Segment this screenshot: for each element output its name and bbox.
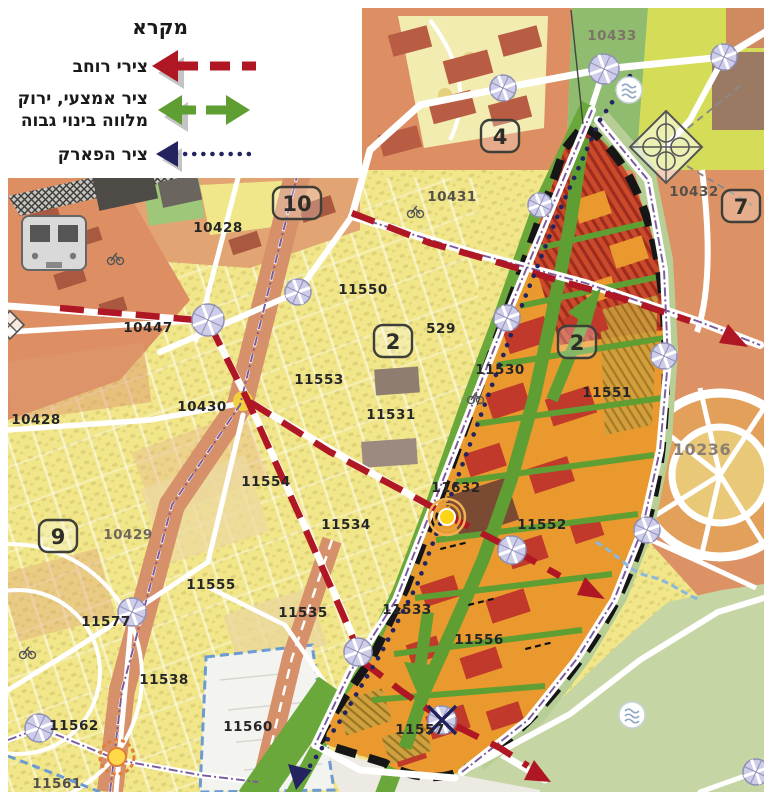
parcel-label: 10428 — [193, 220, 242, 236]
parcel-label: 11554 — [241, 474, 290, 490]
parcel-label: 11533 — [382, 602, 431, 618]
parcel-label: 11550 — [338, 282, 387, 298]
parcel-label: 10428 — [11, 412, 60, 428]
parcel-label: 10431 — [427, 189, 476, 205]
parcel-label: 529 — [426, 321, 456, 337]
parcel-label: 11632 — [431, 480, 480, 496]
node-marker-icon — [429, 499, 465, 535]
district-badge: 2 — [374, 325, 412, 357]
legend-item-label-line2: מלווה בינוי גבוה — [21, 111, 148, 131]
legend-item-label: ציר הפארק — [58, 145, 148, 165]
parcel-label: 11552 — [517, 517, 566, 533]
parcel-label: 11560 — [223, 719, 272, 735]
train-icon — [22, 216, 86, 270]
map-canvas: 4710229 10433104321043110428115505291044… — [0, 0, 772, 800]
district-badge-number: 2 — [386, 330, 401, 354]
parcel-label: 11553 — [294, 372, 343, 388]
legend-item-label: צירי רוחב — [73, 57, 148, 77]
district-badge: 9 — [39, 520, 77, 552]
parcel-label: 10432 — [669, 184, 718, 200]
parcel-label: 11538 — [139, 672, 188, 688]
parcel-label: 11556 — [454, 632, 503, 648]
district-badge: 7 — [722, 190, 760, 222]
parcel-label: 11531 — [366, 407, 415, 423]
district-badge-number: 2 — [570, 331, 585, 355]
legend-title: מקרא — [132, 15, 188, 39]
district-badge: 10 — [273, 187, 321, 219]
parcel-label: 11534 — [321, 517, 370, 533]
district-badge: 4 — [481, 120, 519, 152]
legend-item-label-line1: ציר אמצעי, ירוק — [18, 89, 148, 109]
parcel-label: 10433 — [587, 28, 636, 44]
parcel-label: 10236 — [673, 440, 731, 459]
district-badge-number: 9 — [51, 525, 66, 549]
parcel-label: 11562 — [49, 718, 98, 734]
parcel-label: 10429 — [103, 527, 152, 543]
parcel-label: 11530 — [475, 362, 524, 378]
parcel-label: 11551 — [582, 385, 631, 401]
water-icon — [619, 702, 645, 728]
district-badge-number: 4 — [493, 125, 508, 149]
planning-map-page: 4710229 10433104321043110428115505291044… — [0, 0, 772, 800]
parcel-label: 11557 — [395, 722, 444, 738]
parcel-label: 11577 — [81, 614, 130, 630]
parcel-label: 11561 — [32, 776, 81, 792]
parcel-label: 10430 — [177, 399, 226, 415]
parcel-label: 11535 — [278, 605, 327, 621]
legend: מקרא צירי רוחב ציר אמצעי, ירוק מלווה בינ… — [0, 0, 362, 178]
district-badge-number: 7 — [734, 195, 749, 219]
district-badge-number: 10 — [282, 192, 311, 216]
parcel-label: 10447 — [123, 320, 172, 336]
parcel-label: 11555 — [186, 577, 235, 593]
district-badge: 2 — [558, 326, 596, 358]
water-icon — [616, 77, 642, 103]
